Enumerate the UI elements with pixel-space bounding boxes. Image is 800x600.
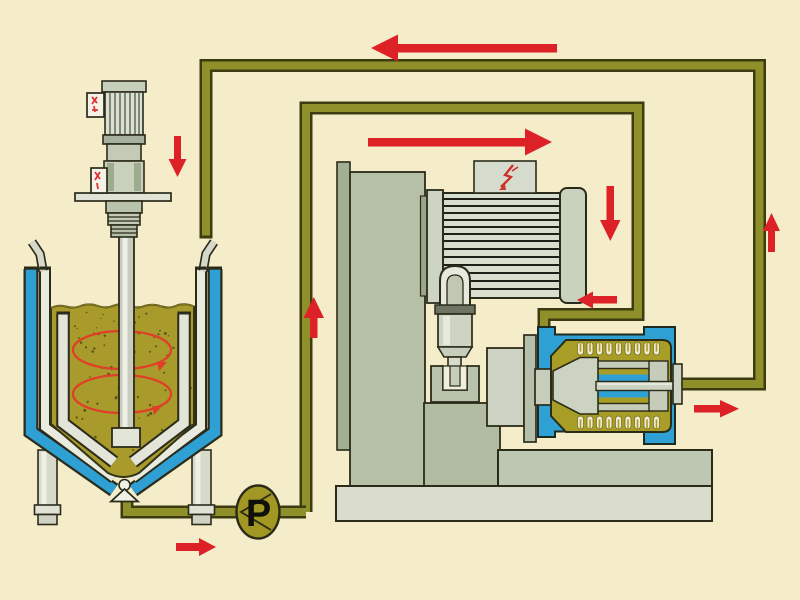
svg-text:P: P — [246, 493, 271, 535]
